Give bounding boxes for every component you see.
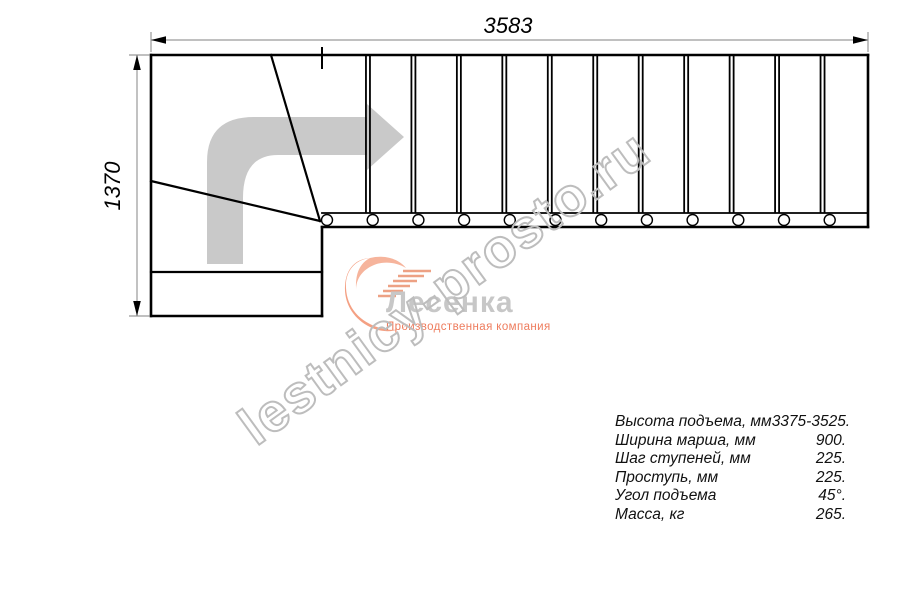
spec-value: 45°. xyxy=(818,487,846,506)
left-dimension-label: 1370 xyxy=(100,161,125,211)
top-dimension-label: 3583 xyxy=(484,13,534,38)
spec-value: 900. xyxy=(816,432,846,451)
baluster-circle xyxy=(504,215,515,226)
spec-row: Проступь, мм 225. xyxy=(615,469,846,488)
baluster-circle xyxy=(824,215,835,226)
baluster-circle xyxy=(779,215,790,226)
spec-label: Шаг ступеней, мм xyxy=(615,450,751,469)
dim-arrow-left-icon xyxy=(151,36,166,44)
baluster-circle xyxy=(413,215,424,226)
baluster-circle xyxy=(687,215,698,226)
dim-arrow-down-icon xyxy=(133,301,141,316)
spec-value: 225. xyxy=(816,450,846,469)
spec-row: Масса, кг 265. xyxy=(615,506,846,525)
dimension-left xyxy=(129,55,149,316)
logo-tagline: Производственная компания xyxy=(386,321,551,333)
baluster-circle xyxy=(596,215,607,226)
direction-arrow xyxy=(207,104,404,264)
baluster-circle xyxy=(322,215,333,226)
spec-row: Угол подъема 45°. xyxy=(615,487,846,506)
logo-name: Лесенка xyxy=(386,286,514,320)
spec-value: 265. xyxy=(816,506,846,525)
baluster-circle xyxy=(641,215,652,226)
spec-label: Масса, кг xyxy=(615,506,684,525)
baluster-circle xyxy=(550,215,561,226)
plan-interior-lines xyxy=(151,48,868,272)
dim-arrow-right-icon xyxy=(853,36,868,44)
spec-row: Шаг ступеней, мм 225. xyxy=(615,450,846,469)
spec-row: Высота подъема, мм 3375-3525. xyxy=(615,413,846,432)
baluster-circle xyxy=(459,215,470,226)
stair-plan-page: 3583 1370 xyxy=(0,0,900,600)
spec-label: Угол подъема xyxy=(615,487,716,506)
spec-row: Ширина марша, мм 900. xyxy=(615,432,846,451)
spec-value: 225. xyxy=(816,469,846,488)
spec-value: 3375-3525. xyxy=(772,413,850,432)
spec-label: Ширина марша, мм xyxy=(615,432,756,451)
spec-label: Высота подъема, мм xyxy=(615,413,772,432)
baluster-circle xyxy=(733,215,744,226)
baluster-circle xyxy=(367,215,378,226)
company-logo: Лесенка Производственная компания xyxy=(342,252,572,344)
dim-arrow-up-icon xyxy=(133,55,141,70)
spec-table: Высота подъема, мм 3375-3525. Ширина мар… xyxy=(615,413,846,525)
spec-label: Проступь, мм xyxy=(615,469,718,488)
